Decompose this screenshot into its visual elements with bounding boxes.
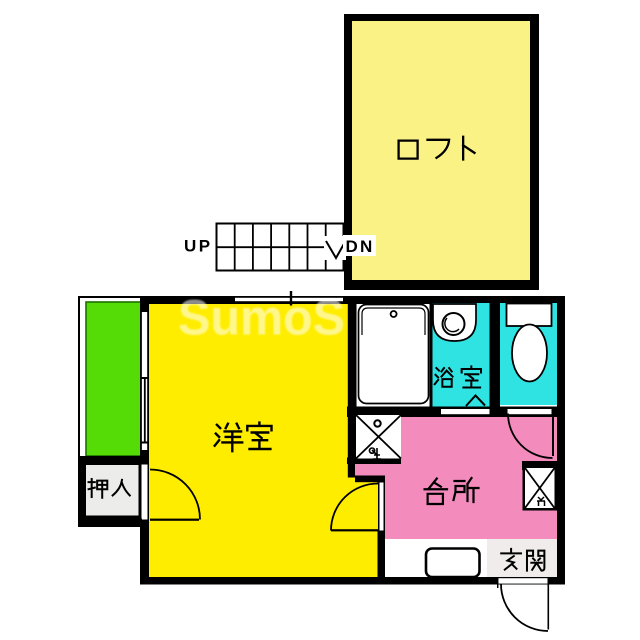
svg-text:DN: DN — [346, 237, 375, 256]
svg-text:SumoS: SumoS — [178, 290, 345, 346]
svg-text:UP: UP — [184, 237, 213, 256]
